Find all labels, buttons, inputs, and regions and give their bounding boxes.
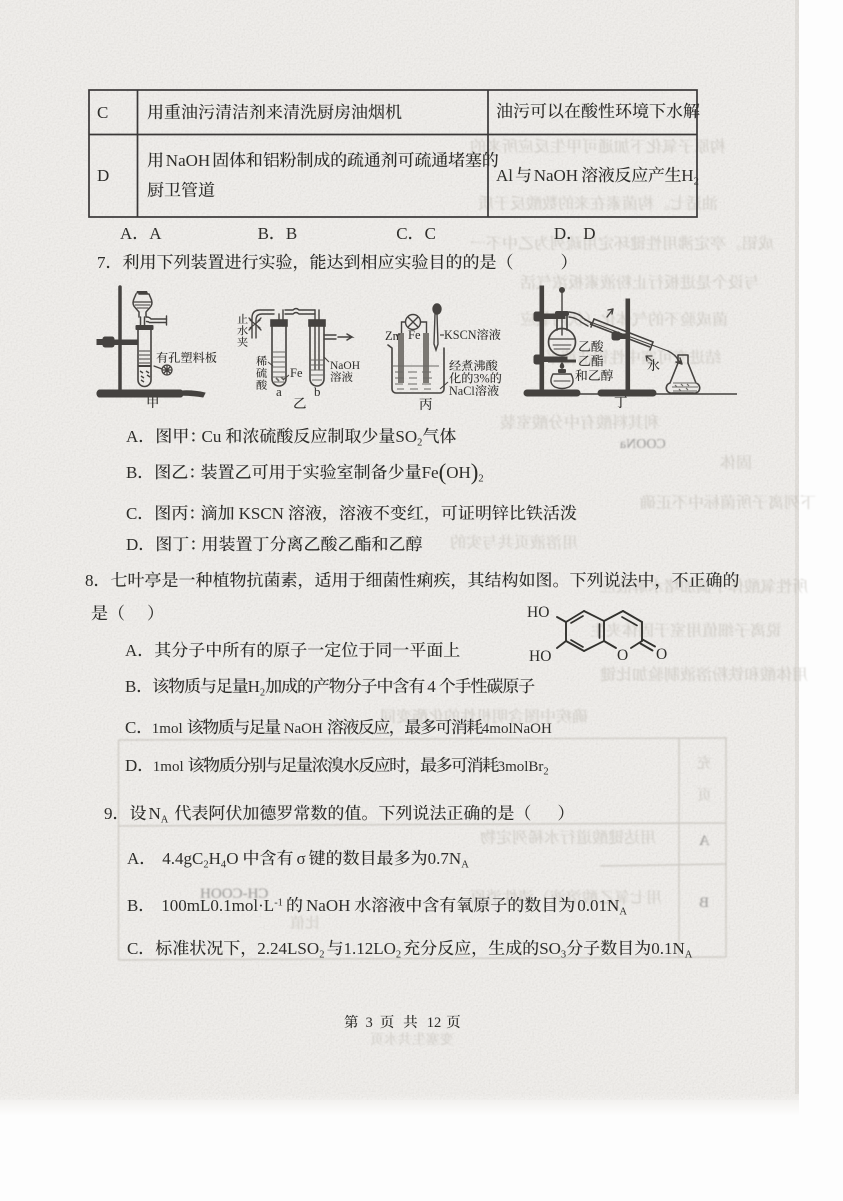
svg-text:O: O [226,849,238,868]
svg-text:2.24LSO: 2.24LSO [257,939,319,958]
svg-text:B: B [258,224,269,243]
svg-text:C: C [126,504,137,523]
svg-text:Cu: Cu [202,427,222,446]
svg-text:4molNaOH: 4molNaOH [482,721,552,737]
svg-text:H: H [209,849,221,868]
svg-text:Fe: Fe [290,366,303,380]
svg-text:Al: Al [496,166,513,185]
svg-text:A: A [120,224,133,243]
svg-text:NaOH: NaOH [330,360,360,372]
svg-text:C: C [125,718,136,737]
svg-text:(: ( [439,459,447,484]
svg-text:A: A [161,814,169,825]
svg-text:3molBr: 3molBr [498,759,544,775]
svg-text:8: 8 [85,571,94,590]
svg-text:4: 4 [427,677,436,696]
svg-text:A: A [127,849,140,868]
svg-text:1mol: 1mol [153,759,184,775]
svg-text:A: A [149,224,162,243]
svg-text:3%: 3% [473,372,489,386]
svg-text:D: D [583,224,595,243]
svg-text:C: C [396,224,407,243]
svg-text:-1: -1 [274,897,283,908]
svg-text:NaOH: NaOH [306,896,350,915]
svg-text:12: 12 [427,1015,442,1031]
svg-text:B: B [126,463,137,482]
svg-text:A: A [461,859,469,870]
svg-text:D: D [126,535,138,554]
svg-text:0.7N: 0.7N [428,849,462,868]
svg-text:HO: HO [529,648,551,665]
svg-text:2: 2 [478,473,483,484]
svg-text:C: C [425,224,436,243]
svg-text:4.4gC: 4.4gC [162,849,203,868]
svg-text:C: C [97,103,108,122]
svg-text:O: O [617,647,628,664]
svg-text:7: 7 [97,253,106,272]
svg-text:O: O [656,646,667,663]
svg-text:KSCN: KSCN [444,328,477,342]
svg-text:D: D [554,224,566,243]
svg-text:Zn: Zn [385,329,400,343]
svg-text:A: A [699,833,710,849]
svg-text:2: 2 [396,949,401,960]
svg-text:100mL0.1mol·L: 100mL0.1mol·L [161,896,274,915]
svg-text:A: A [685,949,693,960]
svg-text:9: 9 [104,804,113,823]
svg-text:2: 2 [417,437,422,448]
svg-text:D: D [125,756,137,775]
svg-text:OH: OH [446,463,471,482]
svg-text:1.12LO: 1.12LO [344,939,396,958]
svg-text:SO: SO [539,939,561,958]
svg-text:2: 2 [543,766,548,777]
svg-text:3: 3 [366,1015,373,1031]
svg-text:σ: σ [297,849,306,868]
svg-text:KSCN: KSCN [239,504,284,523]
svg-text:B: B [127,896,138,915]
svg-text:3: 3 [561,949,566,960]
svg-text:Fe: Fe [408,328,421,342]
svg-text:B: B [286,224,297,243]
svg-text:A: A [619,906,627,917]
svg-text:SO: SO [395,427,417,446]
svg-text:1mol: 1mol [152,721,183,737]
svg-text:2: 2 [260,687,265,698]
svg-text:COONa: COONa [619,437,666,452]
svg-text:A: A [125,641,138,660]
svg-text:HO: HO [527,604,549,621]
svg-text:0.1N: 0.1N [651,939,685,958]
svg-text:NaOH: NaOH [166,151,210,170]
svg-text:A: A [126,427,139,446]
svg-text:H: H [681,166,693,185]
svg-text:H: H [248,677,260,696]
svg-text:N: N [149,804,161,823]
svg-text:NaOH: NaOH [534,166,578,185]
svg-text:B: B [125,677,136,696]
svg-text:2: 2 [319,949,324,960]
svg-text:D: D [97,166,109,185]
svg-text:Fe: Fe [422,463,439,482]
svg-text:NaOH: NaOH [284,721,323,737]
svg-text:C: C [127,939,138,958]
svg-text:0.01N: 0.01N [577,896,619,915]
svg-text:B: B [699,895,709,911]
svg-text:): ) [471,459,479,484]
svg-text:2: 2 [694,176,699,187]
svg-text:NaCl: NaCl [449,384,475,398]
